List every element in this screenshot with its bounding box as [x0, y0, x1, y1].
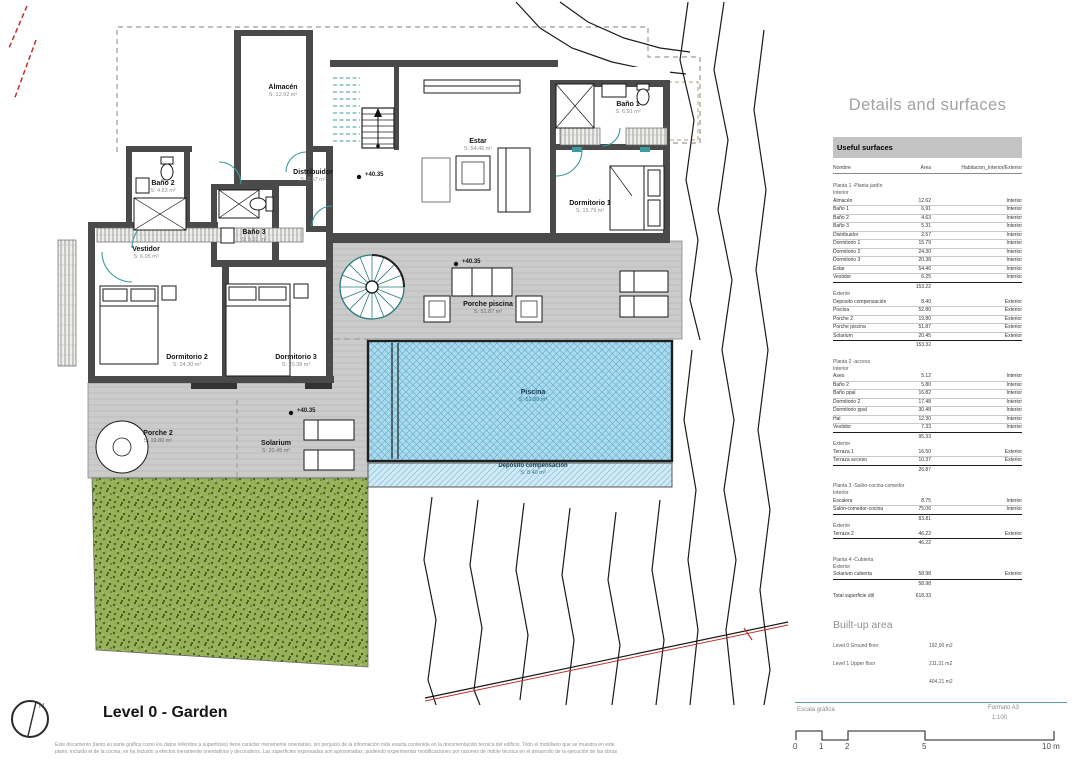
built-up-title: Built-up area	[833, 619, 1022, 631]
row-name: Hal	[833, 416, 905, 424]
table-subsection-label: Interior	[833, 366, 1022, 374]
row-area: 7.33	[905, 424, 931, 432]
disclaimer-line-2: plano, incluido el de la cocina, se ha i…	[55, 749, 747, 756]
row-location: Exterior	[931, 324, 1022, 332]
row-location: Exterior	[931, 299, 1022, 307]
room-area: S: 51.87 m²	[463, 309, 513, 316]
row-name: Dormitorio 2	[833, 249, 905, 257]
built-up-value: 211,31 m2	[929, 661, 1022, 667]
row-location: Interior	[931, 424, 1022, 432]
table-group-label: Planta 2 -acceso	[833, 359, 1022, 366]
scale-tick-label: 5	[922, 742, 926, 751]
row-area: 8.75	[905, 498, 931, 506]
row-name: Vestidor	[833, 274, 905, 282]
table-row: 153.22	[833, 283, 1022, 292]
room-name: Dormitorio 3	[275, 354, 317, 362]
table-subsection-label: Interior	[833, 490, 1022, 498]
row-name: Porche piscina	[833, 324, 905, 332]
plan-title: Level 0 - Garden	[103, 704, 228, 722]
row-location: Exterior	[931, 531, 1022, 539]
room-label: Dormitorio 3S: 20.38 m²	[275, 354, 317, 369]
row-location: Exterior	[931, 571, 1022, 579]
row-location: Interior	[931, 382, 1022, 390]
svg-text:N: N	[39, 703, 44, 710]
row-name: Estar	[833, 266, 905, 274]
row-location: Interior	[931, 390, 1022, 398]
row-name: Total superficie útil	[833, 592, 905, 601]
row-area: 5.12	[905, 373, 931, 381]
table-group-label: Planta 1 -Planta jardín	[833, 183, 1022, 190]
row-location: Interior	[931, 249, 1022, 257]
row-name	[833, 515, 905, 524]
row-area: 4.63	[905, 215, 931, 223]
room-label: PiscinaS: 52.80 m²	[519, 389, 547, 404]
row-name: Terraza acceso	[833, 457, 905, 465]
row-name: Almacén	[833, 198, 905, 206]
table-row: Escalera8.75Interior	[833, 498, 1022, 507]
row-location: Interior	[931, 215, 1022, 223]
row-area: 30.48	[905, 407, 931, 415]
row-name	[833, 433, 905, 442]
table-row: Deposito compensación8.40Exterior	[833, 299, 1022, 308]
table-subsection-label: Interior	[833, 190, 1022, 198]
row-name: Solarium cubierta	[833, 571, 905, 579]
row-name: Aseo	[833, 373, 905, 381]
room-name: Dormitorio 2	[166, 354, 208, 362]
room-name: Deposito compensación	[498, 463, 567, 470]
table-row: Terraza 116.50Exterior	[833, 449, 1022, 458]
table-row: 95.33	[833, 433, 1022, 442]
room-name: Baño 3	[241, 229, 266, 237]
row-area: 58.98	[905, 580, 931, 589]
scale-caption: Escala gráfica	[797, 707, 835, 713]
row-location: Interior	[931, 198, 1022, 206]
room-area: S: 4.63 m²	[150, 188, 175, 195]
row-location: Exterior	[931, 449, 1022, 457]
table-row: Almacén12.62Interior	[833, 198, 1022, 207]
row-name: Piscina	[833, 307, 905, 315]
row-name: Salón-comedor-cocina	[833, 506, 905, 514]
row-location: Interior	[931, 232, 1022, 240]
row-location: Interior	[931, 257, 1022, 265]
graphic-scale: Escala gráfica Formato A3 1:100 012510 m	[795, 700, 1067, 760]
room-name: Baño 1	[615, 101, 640, 109]
row-location: Interior	[931, 206, 1022, 214]
row-name: Dormitorio 2	[833, 399, 905, 407]
table-subsection-label: Exterior	[833, 291, 1022, 299]
table-row: 58.98	[833, 580, 1022, 589]
room-area: S: 19.80 m²	[143, 438, 173, 445]
row-area: 153.32	[905, 341, 931, 350]
surfaces-table-body: Planta 1 -Planta jardínInteriorAlmacén12…	[833, 183, 1022, 601]
row-name: Escalera	[833, 498, 905, 506]
room-area: S: 15.79 m²	[569, 208, 611, 215]
row-area: 12.62	[905, 198, 931, 206]
row-area: 95.33	[905, 433, 931, 442]
row-area: 15.79	[905, 240, 931, 248]
row-name	[833, 580, 905, 589]
table-row: Piscina52.80Exterior	[833, 307, 1022, 316]
room-area: S: 8.40 m²	[498, 470, 567, 477]
table-group-label: Planta 3 -Salón-cocina-comedor	[833, 483, 1022, 490]
room-name: Vestidor	[132, 246, 160, 254]
floor-plan-sheet: AlmacénS: 12.92 m²EstarS: 54.46 m²Baño 1…	[0, 0, 1080, 763]
room-name: Baño 2	[150, 180, 175, 188]
row-area: 16.50	[905, 449, 931, 457]
row-area: 2.57	[905, 232, 931, 240]
row-name: Distribuidor	[833, 232, 905, 240]
built-up-row: Level 1 Upper floor211,31 m2	[833, 661, 1022, 667]
row-area: 20.45	[905, 333, 931, 341]
row-name	[833, 283, 905, 292]
panel-title: Details and surfaces	[833, 96, 1022, 115]
built-up-label: Level 1 Upper floor	[833, 661, 929, 667]
row-location: Interior	[931, 498, 1022, 506]
scale-bar	[795, 726, 1057, 742]
row-name: Terraza 2	[833, 531, 905, 539]
elevation-label: +40.35	[462, 259, 481, 265]
row-name	[833, 341, 905, 350]
table-row: 26.87	[833, 466, 1022, 475]
room-label: EstarS: 54.46 m²	[464, 138, 492, 153]
table-row: Vestidor6.25Interior	[833, 274, 1022, 283]
room-label: AlmacénS: 12.92 m²	[268, 84, 297, 99]
sheet-format: Formato A3	[988, 705, 1019, 711]
floor-plan-drawing	[0, 0, 800, 710]
room-label: Baño 1S: 6.91 m²	[615, 101, 640, 116]
row-location: Interior	[931, 274, 1022, 282]
built-up-label	[833, 679, 929, 685]
table-row: Baño 35.31Interior	[833, 223, 1022, 232]
room-area: S: 12.92 m²	[268, 92, 297, 99]
table-row: Estar54.46Interior	[833, 266, 1022, 275]
row-location: Interior	[931, 506, 1022, 514]
table-row: Distribuidor2.57Interior	[833, 232, 1022, 241]
room-label: DistribuidorS: 2.57 m²	[293, 169, 333, 184]
table-row: Total superficie útil618.33	[833, 592, 1022, 601]
row-location: Exterior	[931, 333, 1022, 341]
room-name: Porche 2	[143, 430, 173, 438]
row-area: 16.82	[905, 390, 931, 398]
built-up-label: Level 0 Ground floor	[833, 643, 929, 649]
row-location: Interior	[931, 407, 1022, 415]
row-name: Baño ppal	[833, 390, 905, 398]
table-subsection-label: Exterior	[833, 564, 1022, 572]
north-arrow-icon: N	[8, 696, 54, 742]
room-label: Porche piscinaS: 51.87 m²	[463, 301, 513, 316]
room-area: S: 24.30 m²	[166, 362, 208, 369]
garden-lawn	[92, 478, 368, 667]
built-up-row: Level 0 Ground floor192,90 m2	[833, 643, 1022, 649]
table-row: Solarium20.45Exterior	[833, 333, 1022, 342]
scale-ratio: 1:100	[992, 715, 1007, 721]
row-area: 46.22	[905, 531, 931, 539]
table-row: Dormitorio ppal30.48Interior	[833, 407, 1022, 416]
table-row: Hal12.30Interior	[833, 416, 1022, 425]
room-area: S: 6.91 m²	[615, 109, 640, 116]
table-row: Vestidor7.33Interior	[833, 424, 1022, 433]
table-row: Dormitorio 115.79Interior	[833, 240, 1022, 249]
row-location: Exterior	[931, 307, 1022, 315]
row-location: Interior	[931, 373, 1022, 381]
row-area: 51.87	[905, 324, 931, 332]
red-boundary-dashes	[9, 6, 36, 100]
room-name: Estar	[464, 138, 492, 146]
row-area: 618.33	[905, 592, 931, 601]
row-name: Vestidor	[833, 424, 905, 432]
row-area: 6.91	[905, 206, 931, 214]
row-location	[931, 515, 1022, 524]
property-line	[425, 622, 788, 701]
row-area: 17.48	[905, 399, 931, 407]
table-row: 46.22	[833, 539, 1022, 548]
row-name: Baño 1	[833, 206, 905, 214]
row-name: Deposito compensación	[833, 299, 905, 307]
built-up-total-row: 404,21 m2	[833, 679, 1022, 685]
row-name: Baño 2	[833, 382, 905, 390]
scale-tick-label: 1	[819, 742, 823, 751]
row-name	[833, 539, 905, 548]
table-header-band: Useful surfaces	[833, 137, 1022, 158]
row-area: 153.22	[905, 283, 931, 292]
table-row: Dormitorio 224.30Interior	[833, 249, 1022, 258]
row-location: Interior	[931, 223, 1022, 231]
row-area: 26.87	[905, 466, 931, 475]
row-name: Dormitorio 3	[833, 257, 905, 265]
row-name: Dormitorio 1	[833, 240, 905, 248]
row-name: Baño 3	[833, 223, 905, 231]
row-location	[931, 539, 1022, 548]
row-location	[931, 341, 1022, 350]
row-location: Interior	[931, 266, 1022, 274]
disclaimer-text: Este documento (tanto su parte gráfica c…	[55, 742, 747, 756]
table-row: Porche 219.80Exterior	[833, 316, 1022, 325]
room-name: Piscina	[519, 389, 547, 397]
table-row: Baño 16.91Interior	[833, 206, 1022, 215]
room-label: SolariumS: 20.45 m²	[261, 440, 291, 455]
scale-tick-label: 10 m	[1042, 742, 1060, 751]
row-area: 19.80	[905, 316, 931, 324]
spiral-staircase	[340, 255, 404, 319]
table-row: Baño 25.80Interior	[833, 382, 1022, 391]
row-name: Baño 2	[833, 215, 905, 223]
row-name: Porche 2	[833, 316, 905, 324]
row-location	[931, 580, 1022, 589]
room-area: S: 20.38 m²	[275, 362, 317, 369]
table-row: Baño ppal16.82Interior	[833, 390, 1022, 399]
row-area: 12.30	[905, 416, 931, 424]
row-location	[931, 466, 1022, 475]
scale-tick-label: 0	[793, 742, 797, 751]
details-panel: Details and surfaces Useful surfaces Nom…	[833, 96, 1022, 685]
room-area: S: 2.57 m²	[293, 177, 333, 184]
row-area: 75.06	[905, 506, 931, 514]
row-area: 58.98	[905, 571, 931, 579]
column-nombre: Nombre	[833, 165, 905, 171]
row-area: 10.37	[905, 457, 931, 465]
room-name: Dormitorio 1	[569, 200, 611, 208]
row-area: 52.80	[905, 307, 931, 315]
row-area: 8.40	[905, 299, 931, 307]
room-area: S: 20.45 m²	[261, 448, 291, 455]
row-location: Exterior	[931, 457, 1022, 465]
table-row: Dormitorio 217.48Interior	[833, 399, 1022, 408]
row-area: 5.31	[905, 223, 931, 231]
row-name: Solarium	[833, 333, 905, 341]
room-name: Distribuidor	[293, 169, 333, 177]
room-area: S: 5.31 m²	[241, 237, 266, 244]
row-name: Terraza 1	[833, 449, 905, 457]
table-row: Terraza acceso10.37Exterior	[833, 457, 1022, 466]
built-up-total-value: 404,21 m2	[929, 679, 1022, 685]
table-subsection-label: Exterior	[833, 523, 1022, 531]
room-name: Almacén	[268, 84, 297, 92]
row-name: Dormitorio ppal	[833, 407, 905, 415]
room-label: Baño 3S: 5.31 m²	[241, 229, 266, 244]
room-label: Baño 2S: 4.63 m²	[150, 180, 175, 195]
table-row: Baño 24.63Interior	[833, 215, 1022, 224]
room-name: Solarium	[261, 440, 291, 448]
row-location	[931, 283, 1022, 292]
room-label: Dormitorio 2S: 24.30 m²	[166, 354, 208, 369]
elevation-label: +40.35	[365, 172, 384, 178]
table-row: Salón-comedor-cocina75.06Interior	[833, 506, 1022, 515]
room-name: Porche piscina	[463, 301, 513, 309]
room-label: Deposito compensaciónS: 8.40 m²	[498, 463, 567, 477]
elevation-label: +40.35	[297, 408, 316, 414]
table-group-label: Planta 4 -Cubierta	[833, 557, 1022, 564]
row-area: 20.38	[905, 257, 931, 265]
row-area: 83.81	[905, 515, 931, 524]
row-area: 5.80	[905, 382, 931, 390]
column-area: Área	[905, 165, 931, 171]
row-name	[833, 466, 905, 475]
column-habitacion: Habitacion_Interior/Exterior	[931, 165, 1022, 171]
built-up-value: 192,90 m2	[929, 643, 1022, 649]
table-row: Solarium cubierta58.98Exterior	[833, 571, 1022, 580]
row-location	[931, 592, 1022, 601]
disclaimer-line-1: Este documento (tanto su parte gráfica c…	[55, 742, 747, 749]
room-label: Dormitorio 1S: 15.79 m²	[569, 200, 611, 215]
row-area: 46.22	[905, 539, 931, 548]
row-location: Interior	[931, 399, 1022, 407]
table-row: 83.81	[833, 515, 1022, 524]
room-area: S: 54.46 m²	[464, 146, 492, 153]
table-row: 153.32	[833, 341, 1022, 350]
row-location	[931, 433, 1022, 442]
room-area: S: 52.80 m²	[519, 397, 547, 404]
table-row: Aseo5.12Interior	[833, 373, 1022, 382]
table-column-headers: Nombre Área Habitacion_Interior/Exterior	[833, 165, 1022, 174]
room-label: VestidorS: 6.05 m²	[132, 246, 160, 261]
table-row: Porche piscina51.87Exterior	[833, 324, 1022, 333]
table-row: Dormitorio 320.38Interior	[833, 257, 1022, 266]
room-area: S: 6.05 m²	[132, 254, 160, 261]
scale-divider-line	[795, 702, 1067, 703]
room-label: Porche 2S: 19.80 m²	[143, 430, 173, 445]
row-area: 6.25	[905, 274, 931, 282]
table-row: Terraza 246.22Exterior	[833, 531, 1022, 540]
table-subsection-label: Exterior	[833, 441, 1022, 449]
row-location: Interior	[931, 240, 1022, 248]
row-location: Exterior	[931, 316, 1022, 324]
scale-tick-label: 2	[845, 742, 849, 751]
row-location: Interior	[931, 416, 1022, 424]
row-area: 24.30	[905, 249, 931, 257]
built-up-body: Level 0 Ground floor192,90 m2Level 1 Upp…	[833, 643, 1022, 685]
row-area: 54.46	[905, 266, 931, 274]
